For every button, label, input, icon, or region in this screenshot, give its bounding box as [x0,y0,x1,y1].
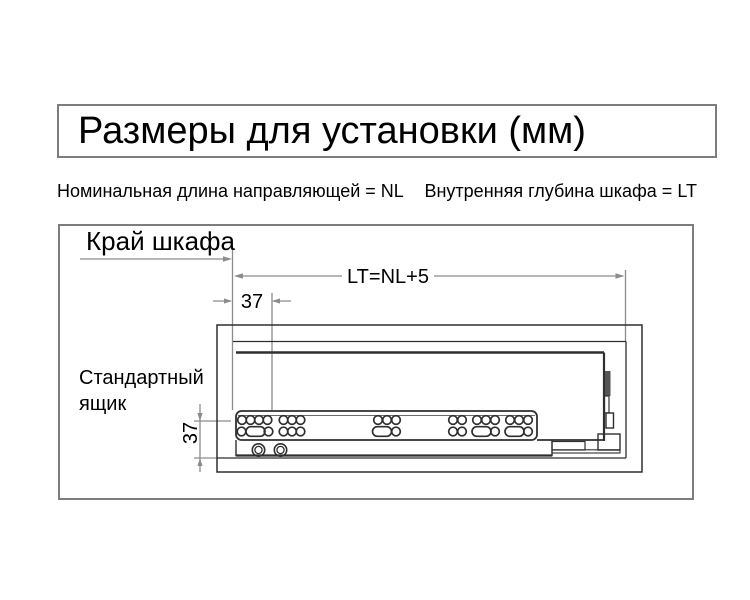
legend-nominal-length: Номинальная длина направляющей = NL [57,181,404,202]
cabinet-edge-label: Край шкафа [86,226,235,257]
dim-lt-label: LT=NL+5 [343,266,433,289]
dim-front-offset-label: 37 [241,291,263,314]
drawer-label: Стандартный ящик [79,365,219,417]
page-title: Размеры для установки (мм) [78,110,586,153]
legend-cabinet-depth: Внутренняя глубина шкафа = LT [424,181,697,202]
dim-height-label: 37 [179,418,203,448]
title-box: Размеры для установки (мм) [57,104,717,158]
page: Размеры для установки (мм) Номинальная д… [0,0,750,600]
